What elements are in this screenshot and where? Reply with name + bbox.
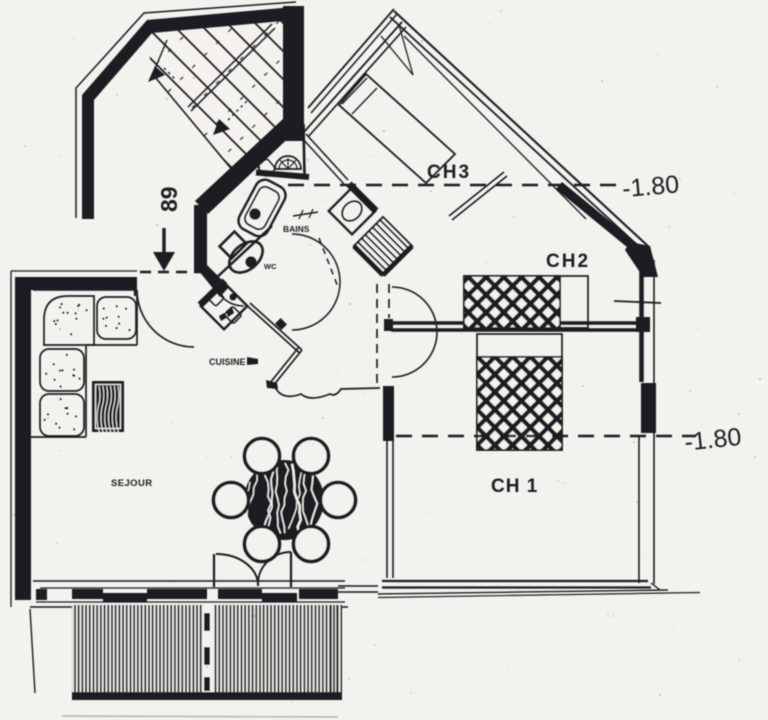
svg-text:CH3: CH3: [427, 162, 471, 183]
svg-text:-1.80: -1.80: [621, 170, 680, 203]
svg-text:BAINS: BAINS: [283, 224, 310, 234]
svg-text:CUISINE: CUISINE: [209, 357, 246, 367]
svg-text:89: 89: [156, 186, 182, 212]
svg-text:SEJOUR: SEJOUR: [111, 478, 152, 489]
svg-text:CH 1: CH 1: [491, 476, 538, 497]
svg-text:WC: WC: [264, 262, 277, 271]
svg-text:-1.80: -1.80: [683, 423, 743, 457]
svg-text:CH2: CH2: [546, 251, 590, 272]
